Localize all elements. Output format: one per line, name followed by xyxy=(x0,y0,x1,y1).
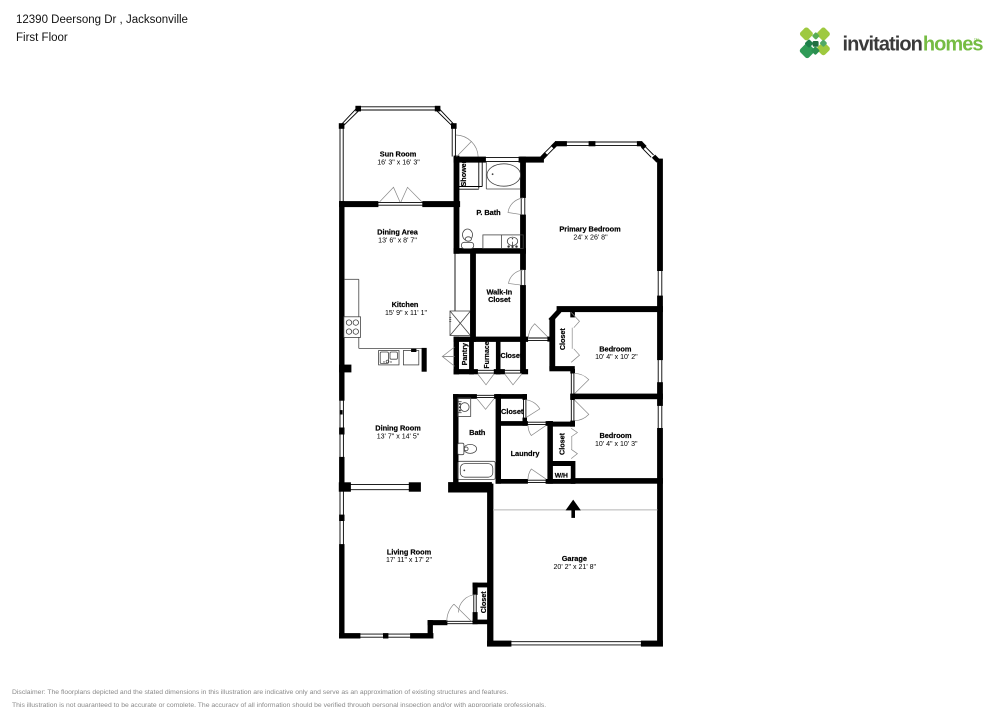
svg-text:13' 6" x 8' 7": 13' 6" x 8' 7" xyxy=(378,238,417,245)
svg-text:Dining Area: Dining Area xyxy=(377,228,419,237)
svg-text:Primary Bedroom: Primary Bedroom xyxy=(559,224,621,233)
svg-text:Living Room: Living Room xyxy=(387,548,432,557)
svg-text:Closet: Closet xyxy=(558,328,567,351)
svg-text:10' 4" x 10' 3": 10' 4" x 10' 3" xyxy=(595,441,638,448)
svg-text:Dining Room: Dining Room xyxy=(375,424,421,433)
svg-text:Bedroom: Bedroom xyxy=(599,344,632,353)
svg-text:Garage: Garage xyxy=(562,554,587,563)
svg-text:13' 7" x 14' 5": 13' 7" x 14' 5" xyxy=(377,433,420,440)
svg-text:Bedroom: Bedroom xyxy=(599,431,632,440)
svg-text:Shower: Shower xyxy=(459,160,468,186)
svg-text:10' 4" x 10' 2": 10' 4" x 10' 2" xyxy=(595,354,638,361)
svg-text:Sun Room: Sun Room xyxy=(380,150,417,159)
svg-text:24' x 26' 8": 24' x 26' 8" xyxy=(573,235,608,242)
svg-text:Kitchen: Kitchen xyxy=(392,300,419,309)
svg-text:Closet: Closet xyxy=(501,407,524,416)
svg-text:20' 2" x 21' 8": 20' 2" x 21' 8" xyxy=(554,564,597,571)
svg-text:W/H: W/H xyxy=(555,472,568,479)
svg-text:Closet: Closet xyxy=(479,591,488,614)
svg-text:Closet: Closet xyxy=(557,432,566,455)
svg-text:17' 11" x 17' 2": 17' 11" x 17' 2" xyxy=(386,557,432,564)
svg-text:Pantry: Pantry xyxy=(460,343,469,365)
svg-text:Laundry: Laundry xyxy=(511,449,541,458)
svg-text:15' 9" x 11' 1": 15' 9" x 11' 1" xyxy=(385,310,428,317)
svg-text:Closet: Closet xyxy=(488,295,511,304)
svg-text:Closet: Closet xyxy=(500,351,522,360)
svg-text:Bath: Bath xyxy=(469,428,486,437)
svg-text:P. Bath: P. Bath xyxy=(476,208,501,217)
svg-text:Furnace: Furnace xyxy=(484,341,491,368)
svg-text:16' 3" x 16' 3": 16' 3" x 16' 3" xyxy=(377,159,420,166)
